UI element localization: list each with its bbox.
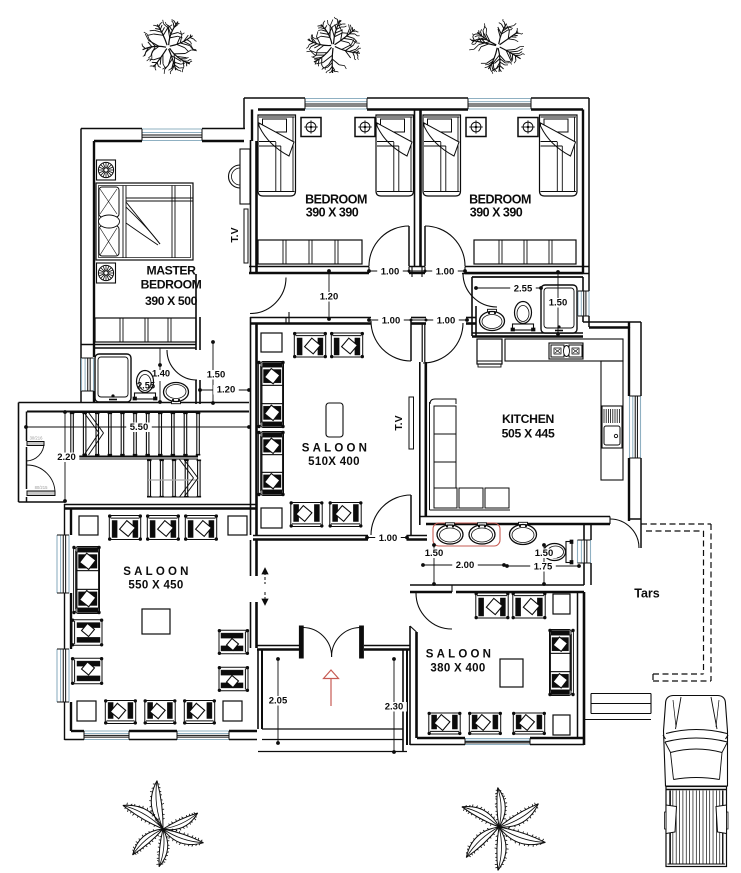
svg-text:1.50: 1.50: [425, 548, 444, 559]
svg-text:505 X 445: 505 X 445: [502, 427, 555, 441]
svg-text:30/216: 30/216: [30, 436, 43, 441]
svg-text:Tars: Tars: [634, 587, 660, 601]
svg-text:SALOON: SALOON: [123, 566, 191, 578]
svg-text:SALOON: SALOON: [426, 649, 494, 661]
svg-text:1.00: 1.00: [437, 315, 456, 326]
svg-text:1.75: 1.75: [534, 561, 553, 572]
svg-text:BEDROOM: BEDROOM: [305, 192, 367, 206]
svg-text:1.20: 1.20: [320, 291, 339, 302]
svg-text:BEDROOM: BEDROOM: [141, 278, 202, 292]
svg-text:BEDROOM: BEDROOM: [469, 192, 531, 206]
svg-text:MASTER: MASTER: [146, 264, 196, 278]
svg-text:1.00: 1.00: [381, 266, 400, 277]
svg-text:390 X 390: 390 X 390: [470, 206, 523, 220]
svg-text:2.05: 2.05: [269, 695, 288, 706]
svg-text:KITCHEN: KITCHEN: [502, 412, 554, 426]
svg-text:2.20: 2.20: [57, 452, 76, 463]
svg-text:390 X 390: 390 X 390: [306, 206, 359, 220]
svg-text:390 X 500: 390 X 500: [145, 294, 198, 308]
svg-text:5.50: 5.50: [130, 422, 149, 433]
svg-text:2.55: 2.55: [137, 381, 155, 391]
svg-text:1.40: 1.40: [152, 369, 170, 379]
svg-text:T.V: T.V: [393, 415, 405, 430]
svg-text:1.00: 1.00: [379, 533, 398, 544]
svg-text:1.00: 1.00: [382, 315, 401, 326]
svg-text:2.30: 2.30: [385, 701, 404, 712]
svg-text:550 X 450: 550 X 450: [128, 580, 183, 592]
svg-text:1.20: 1.20: [217, 384, 236, 395]
svg-text:2.55: 2.55: [514, 283, 533, 294]
svg-text:1.50: 1.50: [535, 548, 554, 559]
svg-text:1.50: 1.50: [549, 297, 568, 308]
svg-text:T.V: T.V: [229, 227, 241, 242]
svg-text:2.00: 2.00: [456, 560, 475, 571]
svg-text:1.50: 1.50: [207, 369, 226, 380]
svg-text:1.00: 1.00: [436, 266, 455, 277]
svg-text:380 X 400: 380 X 400: [430, 663, 485, 675]
svg-text:SALOON: SALOON: [302, 443, 370, 455]
svg-text:80/215: 80/215: [35, 485, 48, 490]
svg-text:510X 400: 510X 400: [308, 456, 360, 468]
